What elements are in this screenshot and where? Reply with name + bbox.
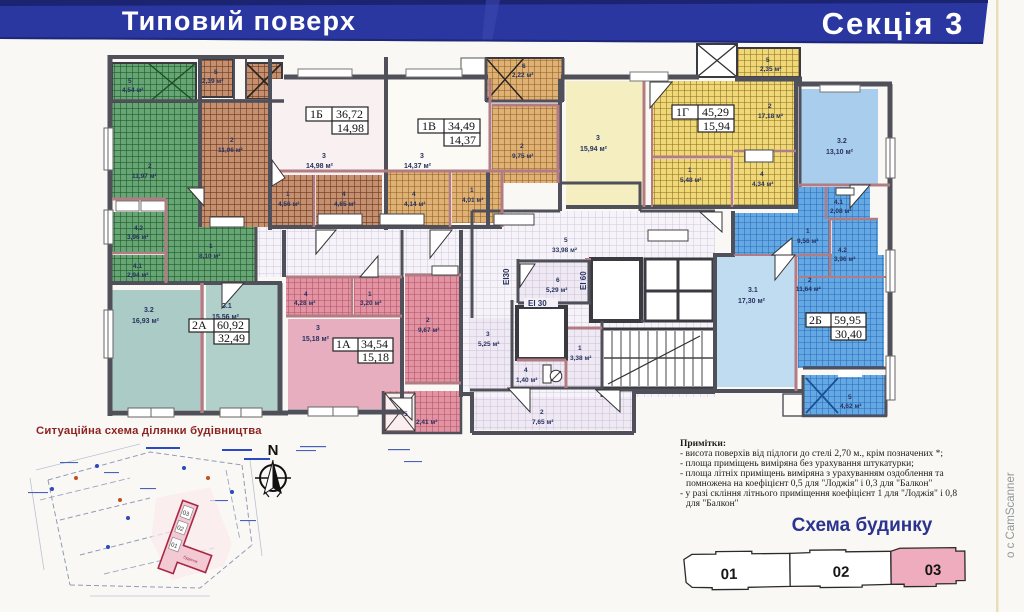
svg-text:11,06 м²: 11,06 м² (218, 147, 244, 154)
svg-text:15,18: 15,18 (362, 350, 389, 364)
svg-text:9,56 м²: 9,56 м² (797, 238, 819, 245)
svg-text:2,39 м²: 2,39 м² (202, 78, 224, 85)
svg-text:6: 6 (556, 277, 560, 284)
svg-text:15,94: 15,94 (703, 119, 730, 133)
svg-text:4: 4 (760, 171, 764, 178)
svg-text:9,75 м²: 9,75 м² (512, 153, 534, 160)
svg-text:4: 4 (304, 291, 308, 298)
svg-text:2,94 м²: 2,94 м² (127, 272, 149, 279)
svg-text:3,38 м²: 3,38 м² (570, 355, 592, 362)
svg-text:помножена на коефіцієнт 0,5 дл: помножена на коефіцієнт 0,5 для "Лоджія"… (686, 478, 933, 489)
svg-text:1,40 м²: 1,40 м² (516, 377, 538, 384)
svg-text:7,65 м²: 7,65 м² (532, 419, 554, 426)
svg-text:2: 2 (148, 163, 152, 170)
svg-text:1: 1 (806, 228, 810, 235)
svg-text:2: 2 (520, 143, 524, 150)
svg-text:5: 5 (766, 57, 770, 64)
svg-text:3: 3 (316, 325, 320, 332)
svg-text:5: 5 (564, 237, 568, 244)
svg-text:4,14 м²: 4,14 м² (404, 201, 426, 208)
svg-text:34,54: 34,54 (361, 337, 388, 351)
svg-text:4: 4 (412, 191, 416, 198)
svg-text:14,37: 14,37 (449, 133, 476, 147)
svg-text:3.1: 3.1 (748, 287, 758, 294)
svg-text:59,95: 59,95 (834, 313, 861, 327)
svg-text:4,01 м²: 4,01 м² (462, 197, 484, 204)
svg-text:2: 2 (808, 277, 812, 284)
svg-text:Схема будинку: Схема будинку (792, 515, 933, 536)
svg-text:1: 1 (578, 345, 582, 352)
svg-text:- у разі скління літнього прим: - у разі скління літнього приміщення кое… (680, 488, 957, 499)
svg-text:5: 5 (214, 69, 218, 76)
svg-text:36,72: 36,72 (336, 107, 363, 121)
svg-text:33,98 м²: 33,98 м² (552, 247, 578, 254)
svg-text:2,41 м²: 2,41 м² (416, 419, 438, 426)
svg-text:4.1: 4.1 (133, 263, 142, 270)
svg-text:1: 1 (286, 191, 290, 198)
svg-text:3: 3 (596, 135, 600, 142)
svg-text:1: 1 (209, 243, 213, 250)
svg-text:14,98 м²: 14,98 м² (306, 163, 334, 170)
svg-text:5,48 м²: 5,48 м² (680, 177, 702, 184)
svg-text:14,98: 14,98 (337, 121, 364, 135)
svg-text:16,93 м²: 16,93 м² (132, 318, 160, 325)
svg-text:01: 01 (721, 566, 738, 583)
svg-text:17,30 м²: 17,30 м² (738, 298, 766, 305)
svg-text:ЕІ30: ЕІ30 (502, 268, 511, 285)
svg-text:5: 5 (404, 411, 408, 418)
svg-text:4.2: 4.2 (134, 225, 143, 232)
svg-text:1В: 1В (422, 119, 436, 133)
svg-text:8,10 м²: 8,10 м² (199, 253, 221, 260)
svg-text:3.1: 3.1 (222, 303, 232, 310)
svg-text:13,10 м²: 13,10 м² (826, 149, 854, 156)
svg-text:4: 4 (342, 191, 346, 198)
svg-text:1А: 1А (336, 337, 351, 351)
svg-text:4.1: 4.1 (834, 199, 843, 206)
svg-text:34,49: 34,49 (448, 119, 475, 133)
svg-text:4.2: 4.2 (838, 247, 847, 254)
svg-text:6: 6 (522, 63, 526, 70)
svg-text:15,18 м²: 15,18 м² (302, 336, 330, 343)
svg-text:о с CamScanner: о с CamScanner (1005, 472, 1017, 558)
svg-text:Ситуаційна схема ділянки будів: Ситуаційна схема ділянки будівництва (36, 425, 262, 437)
svg-text:1Б: 1Б (310, 107, 323, 121)
svg-text:Секція 3: Секція 3 (822, 6, 965, 41)
svg-text:4,65 м²: 4,65 м² (334, 201, 356, 208)
svg-text:- площа літніх приміщень вимір: - площа літніх приміщень виміряна з урах… (680, 468, 944, 479)
svg-text:2: 2 (540, 409, 544, 416)
svg-text:5,29 м²: 5,29 м² (546, 287, 568, 294)
svg-text:4,56 м²: 4,56 м² (278, 201, 300, 208)
svg-text:3: 3 (420, 153, 424, 160)
svg-text:2,22 м²: 2,22 м² (512, 72, 534, 79)
svg-text:17,18 м²: 17,18 м² (758, 113, 784, 120)
svg-text:2: 2 (426, 317, 430, 324)
svg-text:02: 02 (833, 564, 850, 581)
svg-text:1: 1 (368, 291, 372, 298)
svg-text:2А: 2А (192, 318, 207, 332)
svg-text:1Г: 1Г (676, 105, 689, 119)
svg-text:Примітки:: Примітки: (680, 438, 726, 449)
svg-text:4,62 м²: 4,62 м² (840, 403, 862, 410)
svg-text:3: 3 (322, 153, 326, 160)
svg-text:Типовий поверх: Типовий поверх (122, 6, 356, 36)
svg-text:60,92: 60,92 (217, 318, 244, 332)
svg-text:3.2: 3.2 (144, 307, 154, 314)
svg-text:2Б: 2Б (809, 313, 822, 327)
svg-text:1: 1 (470, 187, 474, 194)
svg-text:45,29: 45,29 (702, 105, 729, 119)
svg-text:3,96 м²: 3,96 м² (834, 256, 856, 263)
svg-text:ЕІ 60: ЕІ 60 (579, 271, 588, 290)
svg-text:3,96 м²: 3,96 м² (127, 234, 149, 241)
svg-text:4,28 м²: 4,28 м² (294, 300, 316, 307)
svg-text:5: 5 (848, 394, 852, 401)
svg-text:- площа приміщень виміряна без: - площа приміщень виміряна без урахуванн… (680, 458, 914, 469)
svg-text:4,34 м²: 4,34 м² (752, 181, 774, 188)
svg-text:14,37 м²: 14,37 м² (404, 163, 432, 170)
svg-text:9,67 м²: 9,67 м² (418, 327, 440, 334)
svg-text:N: N (268, 442, 279, 459)
svg-text:32,49: 32,49 (218, 331, 245, 345)
svg-text:2,08 м²: 2,08 м² (830, 208, 852, 215)
svg-text:2: 2 (768, 103, 772, 110)
svg-text:ЕІ 30: ЕІ 30 (528, 299, 547, 308)
svg-text:5: 5 (128, 78, 132, 85)
svg-text:- висота поверхів від підлоги: - висота поверхів від підлоги до стелі 2… (680, 449, 943, 459)
svg-text:4,54 м²: 4,54 м² (122, 87, 144, 94)
svg-text:2,35 м²: 2,35 м² (760, 66, 782, 73)
svg-text:15,94 м²: 15,94 м² (580, 146, 608, 153)
svg-text:3,20 м²: 3,20 м² (360, 300, 382, 307)
svg-text:2: 2 (230, 137, 234, 144)
svg-text:03: 03 (925, 562, 942, 579)
svg-text:для "Балкон": для "Балкон" (686, 499, 739, 509)
svg-text:30,40: 30,40 (835, 327, 862, 341)
svg-text:11,64 м²: 11,64 м² (796, 286, 822, 293)
svg-text:5,25 м²: 5,25 м² (478, 341, 500, 348)
svg-text:3.2: 3.2 (837, 138, 847, 145)
svg-text:4: 4 (524, 367, 528, 374)
svg-text:11,97 м²: 11,97 м² (132, 173, 158, 180)
svg-text:1: 1 (688, 167, 692, 174)
svg-text:3: 3 (486, 331, 490, 338)
